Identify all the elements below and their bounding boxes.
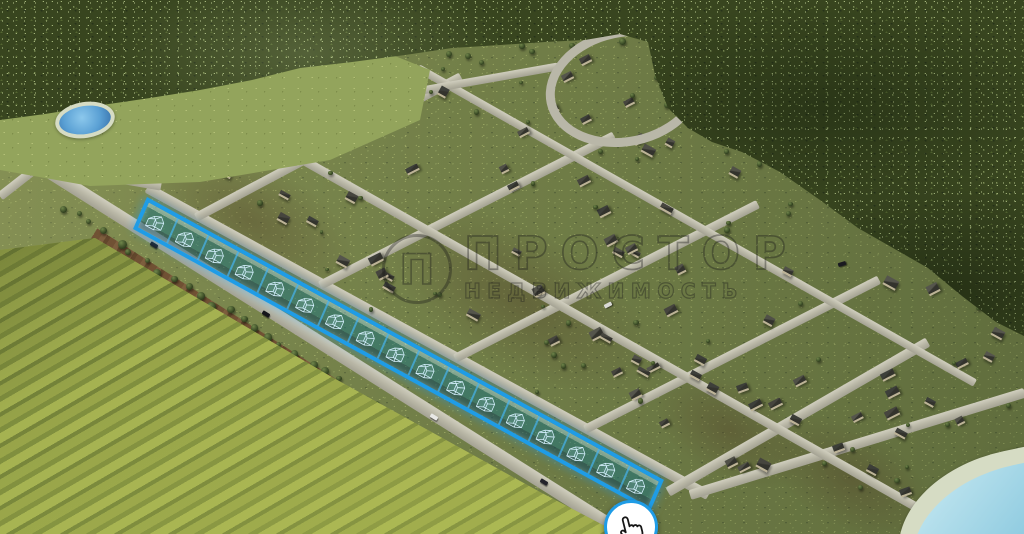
tree — [186, 283, 193, 290]
house — [612, 247, 625, 258]
house — [748, 399, 763, 412]
house — [604, 234, 619, 248]
tree — [325, 268, 328, 271]
tree — [519, 43, 524, 48]
tree — [437, 292, 442, 297]
tree — [320, 230, 324, 234]
car — [604, 301, 613, 308]
tree — [551, 352, 557, 358]
tree — [635, 157, 639, 161]
tree — [257, 200, 262, 205]
house — [883, 406, 899, 420]
tree — [526, 120, 530, 124]
house — [641, 143, 656, 157]
tree — [531, 181, 535, 185]
tree — [598, 149, 603, 154]
tree — [60, 206, 67, 213]
house — [851, 412, 864, 423]
tree — [241, 316, 248, 323]
house — [884, 386, 900, 400]
tree — [369, 307, 374, 312]
tree — [544, 340, 550, 346]
house — [955, 415, 966, 426]
tree — [358, 196, 362, 200]
house — [926, 281, 941, 295]
tree — [858, 485, 863, 490]
house — [499, 163, 510, 174]
tree — [633, 320, 639, 326]
house — [382, 281, 396, 293]
car — [838, 261, 847, 267]
house — [792, 375, 807, 388]
tree — [519, 81, 523, 85]
tree — [100, 227, 107, 234]
hand-pointer-icon — [610, 506, 651, 534]
house — [278, 190, 290, 200]
tree — [798, 301, 803, 306]
house — [596, 205, 611, 219]
tree — [474, 109, 480, 115]
tree — [86, 219, 91, 224]
house — [306, 216, 319, 227]
house — [768, 398, 783, 411]
masterplan-render: П ПРОСТОР НЕДВИЖИМОСТЬ — [0, 0, 1024, 534]
tree — [581, 363, 586, 368]
tree — [945, 422, 950, 427]
tree — [726, 221, 731, 226]
house — [466, 309, 481, 322]
tree — [906, 423, 910, 427]
tree — [118, 240, 127, 249]
road — [583, 275, 881, 433]
tree — [197, 292, 205, 300]
ground-shadow — [633, 346, 828, 513]
tree — [171, 276, 178, 283]
tree — [816, 357, 821, 362]
house — [674, 263, 686, 275]
tree — [479, 60, 484, 65]
house — [983, 351, 996, 363]
house — [611, 367, 623, 377]
house — [277, 211, 291, 224]
tree — [788, 202, 793, 207]
tree — [125, 249, 131, 255]
house — [924, 397, 937, 408]
tree — [822, 461, 827, 466]
tree — [441, 67, 445, 71]
tree — [561, 363, 567, 369]
tree — [446, 51, 452, 57]
tree — [638, 398, 644, 404]
tree — [1006, 403, 1011, 408]
house — [511, 248, 522, 258]
house — [405, 163, 420, 175]
tree — [227, 306, 235, 314]
house — [548, 335, 560, 347]
tree — [77, 211, 83, 217]
house — [729, 166, 742, 179]
tree — [529, 49, 535, 55]
tree — [905, 465, 909, 469]
house — [665, 137, 676, 148]
house — [991, 327, 1006, 341]
tree — [535, 390, 539, 394]
house — [735, 382, 748, 393]
house — [577, 175, 592, 188]
tree — [706, 339, 710, 343]
tree — [465, 53, 471, 59]
house — [898, 486, 911, 497]
house — [955, 358, 969, 370]
tree — [850, 447, 855, 452]
tree — [894, 478, 899, 483]
tree — [786, 211, 791, 216]
tree — [724, 149, 729, 154]
house — [664, 303, 679, 317]
house — [883, 275, 900, 290]
tree — [566, 320, 572, 326]
tree — [724, 227, 730, 233]
tree — [328, 171, 332, 175]
house — [762, 314, 775, 327]
house — [659, 419, 670, 429]
